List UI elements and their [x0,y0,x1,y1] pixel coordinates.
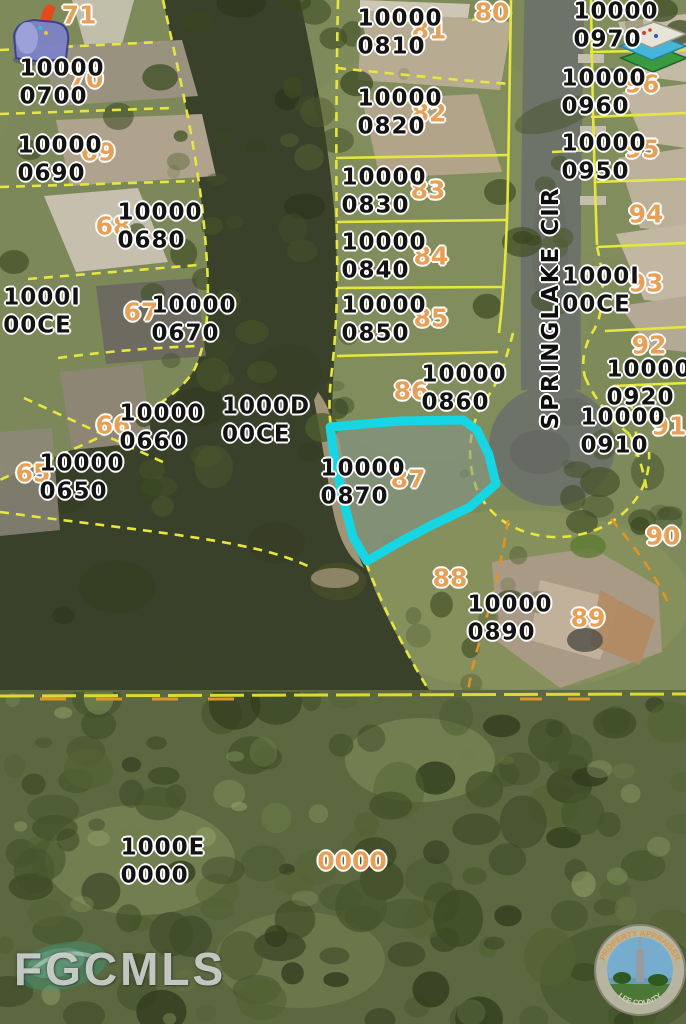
map-graphics: PROPERTY APPRAISER LEE COUNTY [0,0,686,1024]
map-canvas[interactable]: PROPERTY APPRAISER LEE COUNTY 1000007001… [0,0,686,1024]
lee-county-seal-icon: PROPERTY APPRAISER LEE COUNTY [595,925,685,1015]
street-label-springlake-cir: SPRINGLAKE CIR [538,187,564,430]
fgcmls-watermark: FGCMLS [14,942,226,996]
